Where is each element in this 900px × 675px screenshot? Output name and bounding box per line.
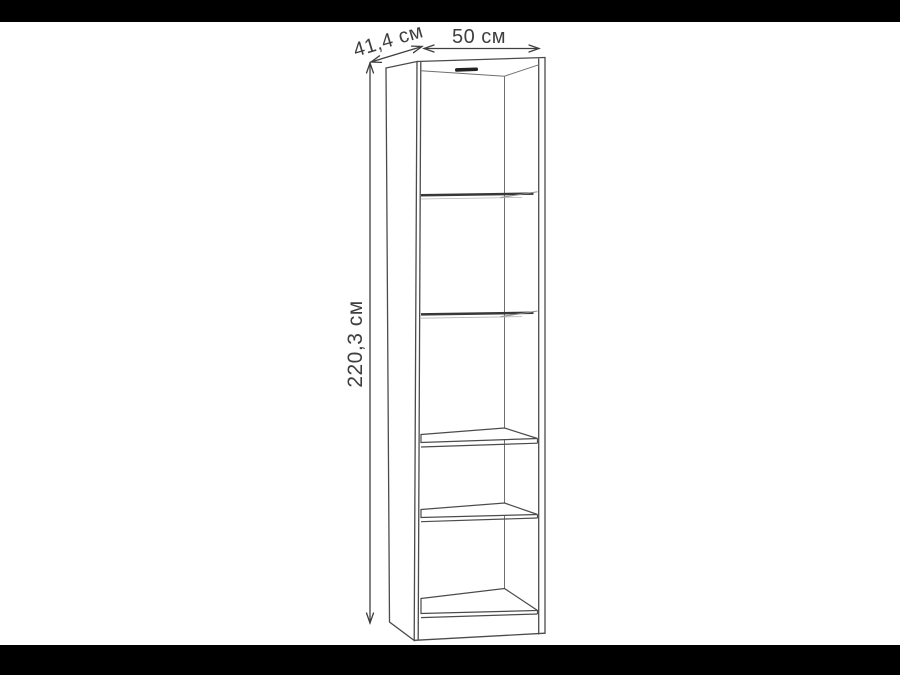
bookcase-outline [386,58,545,641]
bottom-panel-thickness-edge [421,614,538,618]
shelf-2-lower-line [421,317,522,319]
product-dimension-diagram: 41,4 см 50 см 220,3 см [0,0,900,675]
shelf-4 [421,503,538,522]
plinth-bottom-edge [415,633,545,640]
shelf-3 [421,428,538,447]
shelf-2 [421,311,538,318]
top-rail-vent-slot [455,67,478,71]
shelf-4-thickness-edge [421,518,538,522]
shelf-3-thickness-edge [421,443,538,447]
dimension-height-arrow [367,63,374,623]
front-stile-left-inner-edge [418,63,421,640]
bookcase-drawing: 41,4 см 50 см 220,3 см [0,0,900,675]
bottom-panel-top-surface [421,589,538,614]
bottom-panel [421,589,538,618]
top-panel-underside-right-edge [505,65,539,76]
side-panel-left [386,62,417,641]
top-panel-front-edge [417,58,545,62]
shelf-3-top-surface [421,428,538,443]
shelf-1 [421,192,538,199]
depth-dimension-label: 41,4 см [351,20,426,61]
width-dimension-label: 50 см [452,26,506,48]
shelf-1-lower-line [421,197,522,199]
shelf-4-top-surface [421,503,538,518]
height-dimension-label: 220,3 см [344,300,367,387]
